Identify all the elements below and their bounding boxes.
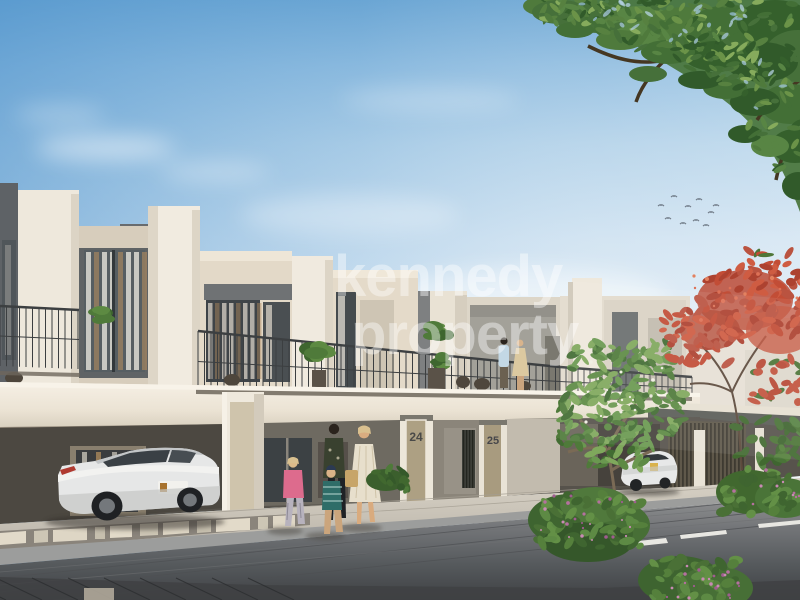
svg-text:kennedy: kennedy bbox=[334, 244, 563, 309]
svg-text:property: property bbox=[351, 302, 579, 367]
svg-text:25: 25 bbox=[487, 435, 499, 447]
svg-text:24: 24 bbox=[409, 430, 423, 444]
